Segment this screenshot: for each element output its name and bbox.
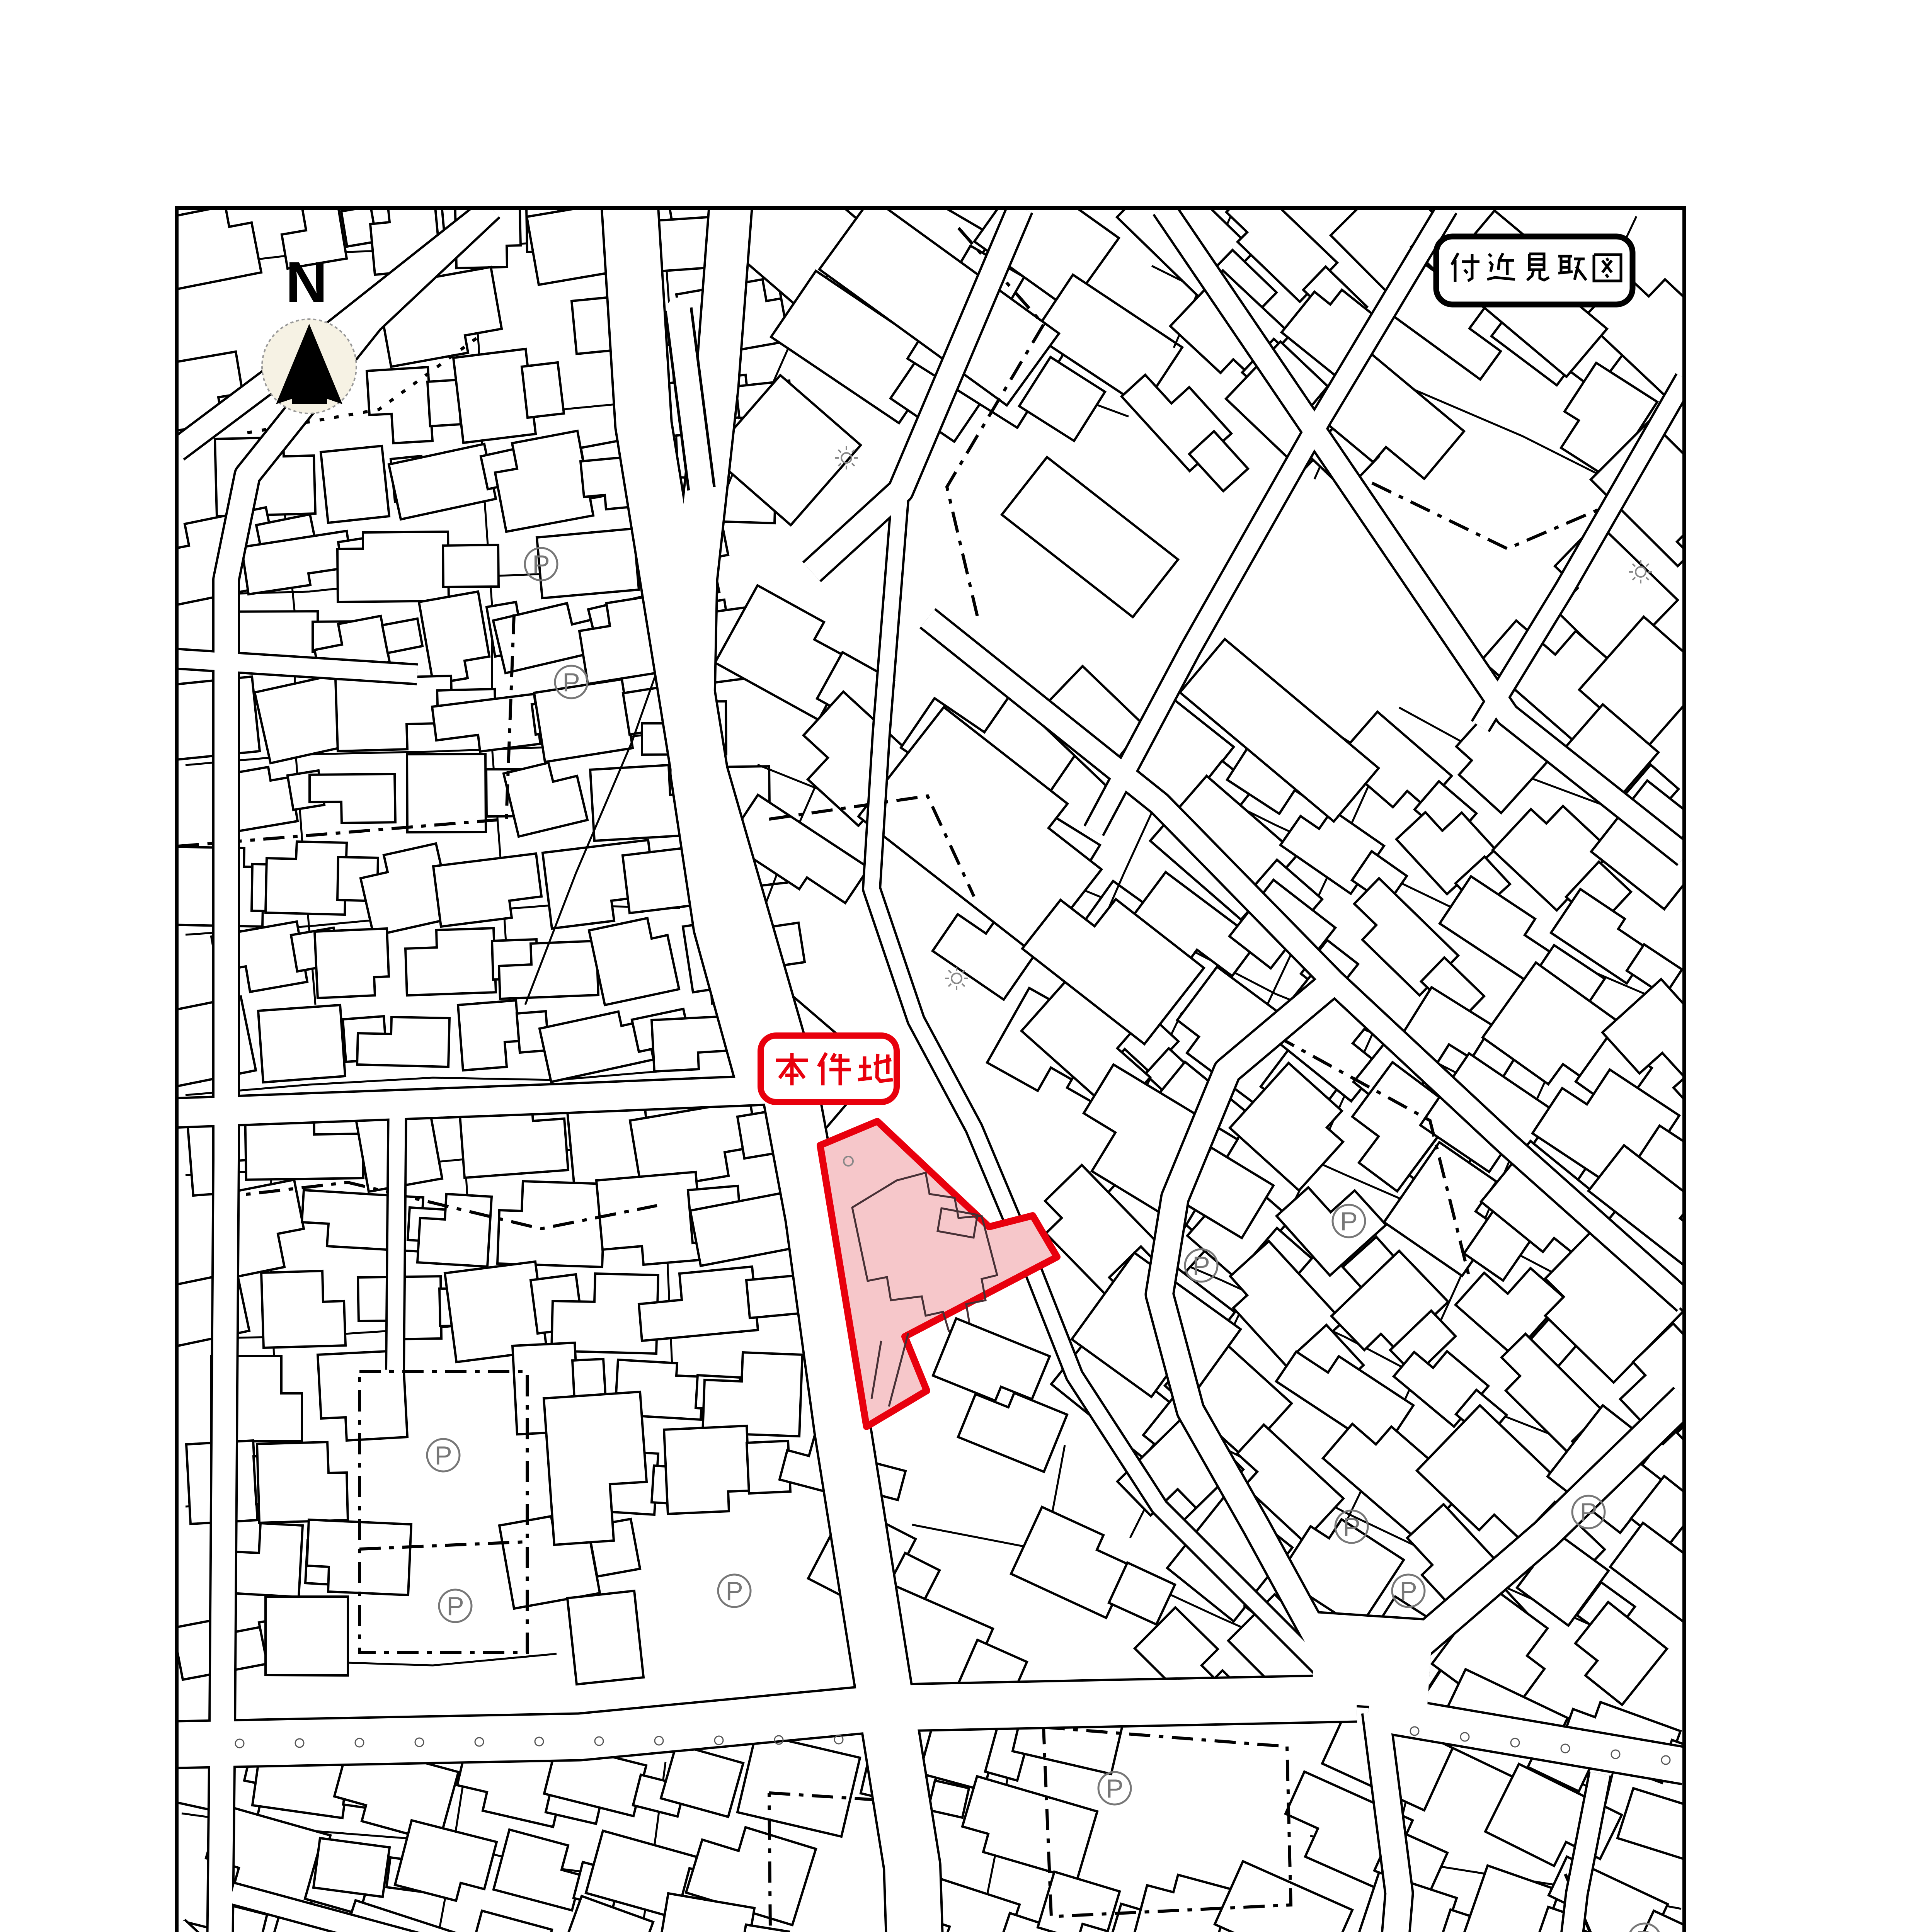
svg-text:P: P [1636,1925,1653,1932]
svg-text:P: P [446,1592,464,1621]
svg-text:P: P [434,1441,452,1470]
svg-text:P: P [1343,1512,1360,1542]
svg-text:P: P [1580,1498,1597,1527]
svg-text:P: P [725,1577,743,1606]
svg-text:P: P [532,550,550,579]
svg-text:P: P [562,668,580,697]
svg-text:P: P [1399,1577,1417,1606]
svg-text:N: N [286,250,327,315]
svg-text:P: P [1192,1251,1210,1281]
svg-text:P: P [1340,1207,1357,1236]
svg-text:P: P [1106,1774,1123,1803]
